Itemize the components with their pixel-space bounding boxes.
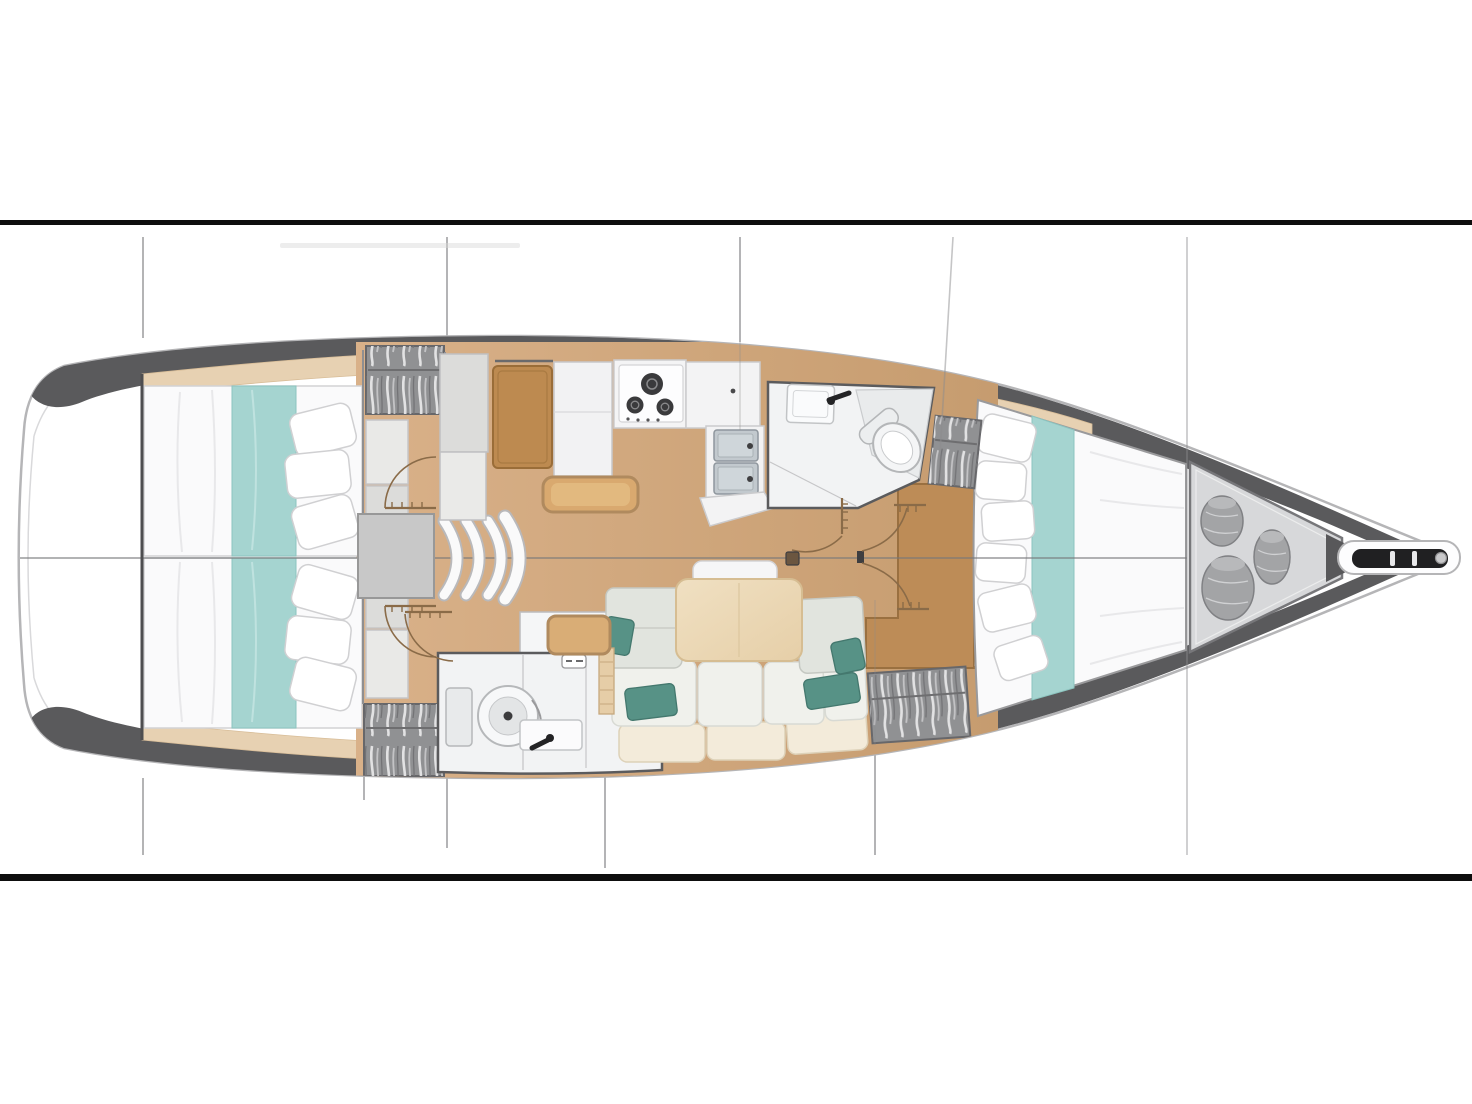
- boom-shadow: [280, 243, 520, 248]
- hanging-clothes-icon: [929, 416, 982, 488]
- side-seat: [548, 616, 610, 654]
- nav-settee: [440, 354, 488, 452]
- chart-table: [493, 366, 552, 468]
- pillows: [284, 401, 361, 552]
- yacht-floor-plan: Sailing yacht interior layout plan — top…: [0, 0, 1472, 1104]
- hanging-clothes-icon: [868, 667, 971, 744]
- door-hinge: [857, 551, 864, 563]
- hanging-clothes-icon: [364, 704, 444, 776]
- anchor-roller-icon: [1352, 549, 1448, 568]
- bag-icon: [1201, 496, 1243, 546]
- bowsprit: [1338, 541, 1460, 574]
- top-rule: [0, 220, 1472, 225]
- aft-cabin-port-berth: [144, 386, 362, 556]
- hanging-clothes-icon: [366, 346, 444, 414]
- forward-head-basin: [786, 384, 834, 424]
- bottom-rule: [0, 874, 1472, 881]
- bag-icon: [1202, 556, 1254, 620]
- aft-cabin-starboard-berth: [144, 558, 362, 728]
- galley-counter: [686, 362, 760, 428]
- fiddle-rail: [599, 648, 614, 714]
- floor-hatch-icon: [786, 552, 799, 565]
- nav-cabinet: [554, 362, 612, 476]
- vent-icon: [562, 655, 586, 668]
- bag-icon: [1254, 530, 1290, 584]
- companionway-platform: [358, 514, 434, 598]
- pillows: [284, 562, 361, 713]
